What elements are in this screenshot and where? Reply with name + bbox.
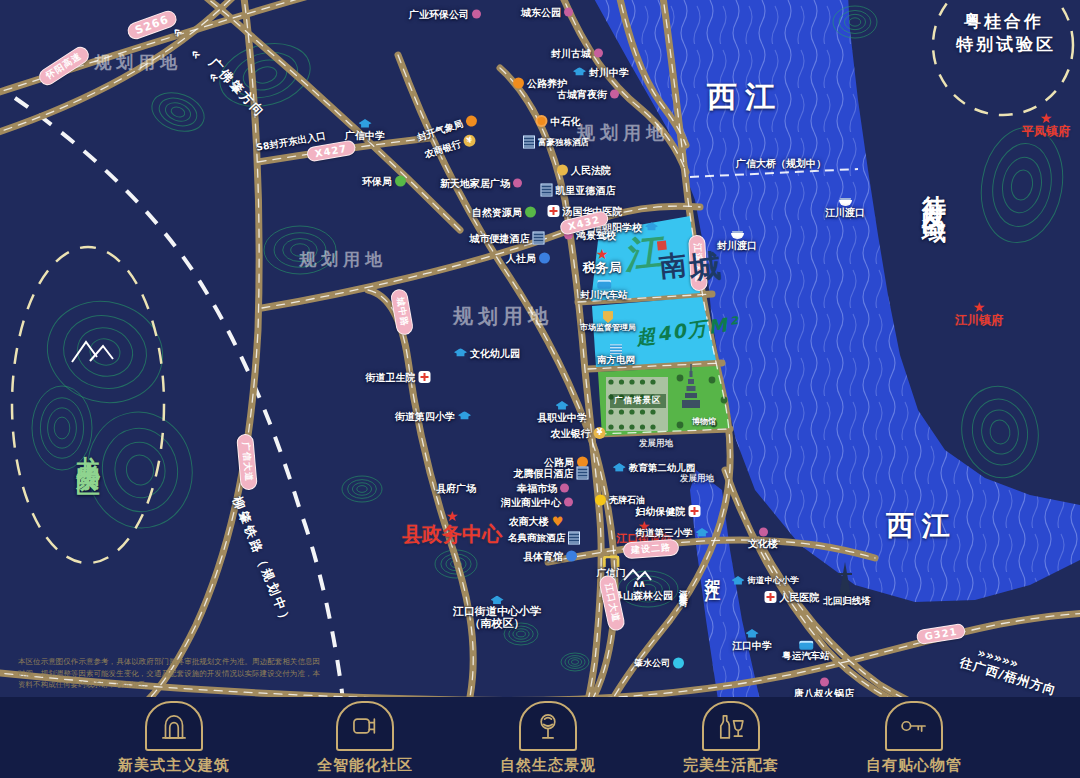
area-label: 龙山景区 (72, 436, 104, 460)
map-poi: 人社局 (506, 253, 550, 264)
poi-label: 税务局 (583, 261, 622, 275)
map-poi: 古城宵夜街 (557, 89, 619, 100)
poi-label: 河鲜美食街 (678, 583, 687, 593)
poi-label: 封川古城 (551, 48, 591, 59)
poi-label: 县政务中心 (402, 523, 502, 545)
map-poi: 街道中心小学 (732, 576, 799, 586)
map-poi: 粤运汽车站 (782, 641, 830, 661)
court-icon (557, 165, 568, 176)
star-icon: ★ (596, 249, 609, 260)
poi-label: 江川镇府 (955, 315, 1003, 328)
planning-label: 规划用地 (299, 248, 387, 271)
map-poi: 县职业中学 (537, 401, 587, 423)
dot-icon (610, 90, 619, 99)
museum-label: 博物馆 (692, 416, 716, 427)
poi-label: 幸福市场 (517, 483, 557, 494)
tree-icon (519, 701, 577, 751)
building-icon (533, 232, 545, 245)
map-poi: 县府广场 (436, 483, 476, 494)
map-poi: 江口中学 (732, 629, 772, 651)
map-poi: 肇水公司 (634, 658, 684, 669)
area-label: 贺江 (702, 566, 723, 578)
building-icon (568, 532, 580, 545)
shell-icon (595, 495, 606, 506)
area-label: 粤桂合作 (964, 10, 1044, 33)
map-poi: 环保局 (362, 176, 406, 187)
area-label: 西江 (886, 507, 958, 545)
building-icon (541, 184, 553, 197)
map-poi: 发展用地 (639, 439, 673, 448)
map-poi: 广信中学 (345, 119, 385, 141)
map-poi: 江口街道中心小学 (453, 595, 541, 618)
map-poi: 南方电网 (597, 344, 635, 365)
road-badge: 城中路 (390, 288, 415, 336)
poi-label: 街道第四小学 (395, 411, 455, 422)
poi-label: 环保局 (362, 176, 392, 187)
feature-label: 完美生活配套 (683, 756, 779, 775)
logo-char: 城 (688, 247, 723, 286)
poi-label: 农商大楼 (509, 516, 549, 527)
feature-bar: 新美式主义建筑全智能化社区自然生态景观完美生活配套自有贴心物管 (0, 697, 1080, 778)
map-poi: ★江川镇府 (955, 302, 1003, 327)
road-badge: 建设二路 (622, 539, 679, 560)
poi-label: 南方电网 (597, 355, 635, 365)
feature-item: 完美生活配套 (683, 701, 779, 775)
logo-seal (657, 241, 667, 251)
school-icon (556, 401, 569, 411)
feature-item: 全智能化社区 (317, 701, 413, 775)
arch-door-icon (145, 701, 203, 751)
poi-label: 自然资源局 (472, 207, 522, 218)
map-poi: 街道卫生院 (366, 371, 431, 383)
school-icon (458, 411, 471, 421)
school-icon (732, 576, 745, 586)
map-poi: 封川渡口 (717, 233, 757, 251)
poi-label: 县职业中学 (537, 412, 587, 423)
school-icon (746, 629, 759, 639)
poi-label: 广信中学 (345, 130, 385, 141)
building-icon (577, 467, 589, 480)
poi-label: 粤运汽车站 (782, 651, 830, 661)
poi-label: 古城宵夜街 (557, 89, 607, 100)
dot-icon (564, 8, 573, 17)
power-icon (610, 344, 622, 354)
map-poi: 龙腾假日酒店 (514, 467, 589, 480)
map-poi: 润业商业中心 (501, 497, 573, 508)
map-poi: 文化幼儿园 (454, 348, 520, 359)
wine-icon (702, 701, 760, 751)
gas-icon (536, 115, 548, 127)
poi-label: 肇水公司 (634, 658, 670, 668)
map-poi: ★县政务中心 (402, 511, 502, 545)
star-icon: ★ (446, 511, 459, 522)
map-poi: ★税务局 (583, 249, 622, 275)
map-poi: 农商大楼♥ (509, 515, 564, 528)
road-badge: 怀阳高速 (36, 44, 92, 89)
key-icon (885, 701, 943, 751)
dot-icon (560, 484, 569, 493)
blue-icon (566, 551, 577, 562)
boat-icon (731, 233, 744, 239)
poi-label: （南校区） (470, 618, 525, 630)
map-poi: 中石化 (536, 115, 581, 127)
police-icon (603, 311, 613, 323)
map-poi: 发展用地 (680, 474, 714, 483)
green-icon (395, 176, 406, 187)
road-badge: G321 (916, 623, 967, 645)
feature-label: 新美式主义建筑 (118, 756, 230, 775)
poi-label: 街道中心小学 (748, 576, 799, 585)
map-poi: 唐八叔火锅店 (794, 678, 854, 698)
map-poi: 河鲜美食街 (678, 583, 687, 593)
poi-label: 县府广场 (436, 483, 476, 494)
poi-label: 城市便捷酒店 (470, 233, 530, 244)
dot-icon (759, 528, 768, 537)
school-icon (696, 528, 709, 538)
poi-label: 壳牌石油 (609, 495, 645, 505)
star-icon: ★ (1040, 113, 1053, 124)
building-icon (523, 136, 535, 149)
gate-icon (603, 555, 620, 567)
dot-icon (472, 10, 481, 19)
map-poi: 新天地家居广场 (440, 178, 522, 189)
map-poi: 自然资源局 (472, 207, 536, 218)
orange-icon (513, 78, 524, 89)
map-poi: 街道第三小学 (636, 528, 709, 538)
school-icon (491, 595, 504, 605)
green-icon (525, 207, 536, 218)
map-poi: 县体育馆 (523, 551, 577, 562)
mountain-icon: ∧∧ (632, 579, 644, 589)
cross-icon (765, 591, 777, 603)
map-poi: 名典商旅酒店 (508, 532, 580, 545)
map-poi: 市场监督管理局 (580, 311, 636, 333)
dot-icon (513, 179, 522, 188)
area-label: 待开发区域 (918, 175, 950, 205)
poi-label: 文化幼儿园 (470, 348, 520, 359)
map-poi: 人民医院 (765, 591, 820, 603)
location-map-page: 江南城 超40万M² 广信塔景区 博物馆 广业环保公司城东公园封川古城封川中学公… (0, 0, 1080, 778)
poi-label: 人民医院 (780, 592, 820, 603)
smart-plug-icon (336, 701, 394, 751)
cross-icon (419, 371, 431, 383)
poi-label: 文化楼 (748, 538, 778, 549)
cross-icon (548, 205, 560, 217)
area-label: « (186, 44, 206, 63)
map-poi: 妇幼保健院 (636, 505, 701, 517)
map-poi: 教育第二幼儿园 (613, 463, 696, 473)
star-icon: ★ (973, 302, 986, 313)
poi-label: 街道第三小学 (636, 528, 693, 538)
map-poi: ★平凤镇府 (1022, 113, 1070, 138)
school-icon (573, 67, 586, 77)
map-poi: 封川汽车站 (580, 280, 628, 300)
map-poi: （南校区） (470, 618, 525, 630)
feature-item: 新美式主义建筑 (118, 701, 230, 775)
feature-label: 自然生态景观 (500, 756, 596, 775)
park-label: 广信塔景区 (610, 394, 666, 408)
bank-icon: ¥ (462, 133, 477, 148)
map-poi: 江川渡口 (825, 200, 865, 218)
poi-label: 县体育馆 (523, 551, 563, 562)
bank-icon: ¥ (594, 427, 606, 439)
poi-label: 农业银行 (551, 428, 591, 439)
feature-label: 全智能化社区 (317, 756, 413, 775)
area-label: 柳肇铁路（规划中） (228, 494, 296, 630)
feature-item: 自然生态景观 (500, 701, 596, 775)
map-poi: 人民法院 (557, 165, 611, 176)
school-icon (359, 119, 372, 129)
planning-label: 规划用地 (577, 121, 669, 145)
feature-label: 自有贴心物管 (866, 756, 962, 775)
bus-icon (597, 280, 611, 289)
blue-icon (539, 253, 550, 264)
poi-label: 农商银行 (423, 138, 462, 160)
poi-label: 北回归线塔 (823, 596, 871, 606)
map-poi: 北回归线塔 (823, 596, 871, 606)
poi-label: 广信大桥（规划中） (736, 158, 826, 169)
heart-icon: ♥ (552, 515, 564, 528)
dot-icon (820, 678, 829, 687)
poi-label: 江川渡口 (825, 207, 865, 218)
poi-label: 润业商业中心 (501, 497, 561, 508)
map-poi: 文化楼 (748, 528, 778, 549)
poi-label: 街道卫生院 (366, 372, 416, 383)
logo-char: 南 (658, 249, 688, 283)
poi-label: 人民法院 (571, 165, 611, 176)
poi-label: 封川汽车站 (580, 290, 628, 300)
area-label: 特别试验区 (956, 33, 1056, 56)
road-badge: 广信大道 (236, 433, 258, 490)
map-poi: 广信大桥（规划中） (736, 158, 826, 169)
dot-icon (564, 498, 573, 507)
planning-label: 规划用地 (453, 303, 553, 330)
logo-char: 江 (622, 230, 663, 277)
poi-label: 教育第二幼儿园 (629, 463, 696, 473)
area-label: 广佛肇方向 (205, 54, 269, 121)
map-poi: 封川中学 (573, 67, 629, 78)
poi-label: 封川中学 (589, 67, 629, 78)
poi-label: 新天地家居广场 (440, 178, 510, 189)
poi-label: 发展用地 (680, 474, 714, 483)
map-poi: 城市便捷酒店 (470, 232, 545, 245)
bus-icon (799, 641, 813, 650)
area-label: 西江 (707, 77, 783, 118)
map-poi: 城东公园 (521, 7, 573, 18)
boat-icon (839, 200, 852, 206)
poi-label: 妇幼保健院 (636, 506, 686, 517)
poi-label: 龙腾假日酒店 (514, 468, 574, 479)
feature-item: 自有贴心物管 (866, 701, 962, 775)
poi-label: 中石化 (551, 116, 581, 127)
project-area-text: 超40万M² (635, 311, 741, 351)
orange-icon (464, 114, 478, 128)
poi-label: 江口中学 (732, 640, 772, 651)
map-poi: 壳牌石油 (595, 495, 645, 506)
poi-label: 唐八叔火锅店 (794, 688, 854, 698)
poi-label: 广业环保公司 (409, 9, 469, 20)
poi-label: 市场监督管理局 (580, 324, 636, 333)
poi-label: 名典商旅酒店 (508, 533, 565, 543)
poi-label: 凯里亚德酒店 (556, 185, 616, 196)
poi-label: 人社局 (506, 253, 536, 264)
map-poi: 幸福市场 (517, 483, 569, 494)
map-area: 江南城 超40万M² 广信塔景区 博物馆 广业环保公司城东公园封川古城封川中学公… (0, 0, 1080, 697)
project-logo: 江南城 (622, 221, 722, 281)
disclaimer: 本区位示意图仅作示意参考，具体以政府部门最终审批规划文件为准。周边配套相关信息因… (18, 656, 320, 691)
map-poi: 封川古城 (551, 48, 603, 59)
map-label-layer: 江南城 超40万M² 广信塔景区 博物馆 广业环保公司城东公园封川古城封川中学公… (0, 0, 1080, 697)
poi-label: 平凤镇府 (1022, 126, 1070, 139)
planning-label: 规划用地 (94, 51, 182, 74)
cross-icon (689, 505, 701, 517)
poi-label: 封川渡口 (717, 240, 757, 251)
water-icon (673, 658, 684, 669)
map-poi: 农业银行¥ (551, 427, 606, 439)
school-icon (454, 348, 467, 358)
poi-label: 发展用地 (639, 439, 673, 448)
school-icon (613, 463, 626, 473)
map-poi: 广业环保公司 (409, 9, 481, 20)
poi-label: 公路养护 (527, 78, 567, 89)
poi-label: 城东公园 (521, 7, 561, 18)
map-poi: 凯里亚德酒店 (541, 184, 616, 197)
map-poi: 街道第四小学 (395, 411, 471, 422)
dot-icon (594, 49, 603, 58)
map-poi: 公路养护 (513, 78, 567, 89)
